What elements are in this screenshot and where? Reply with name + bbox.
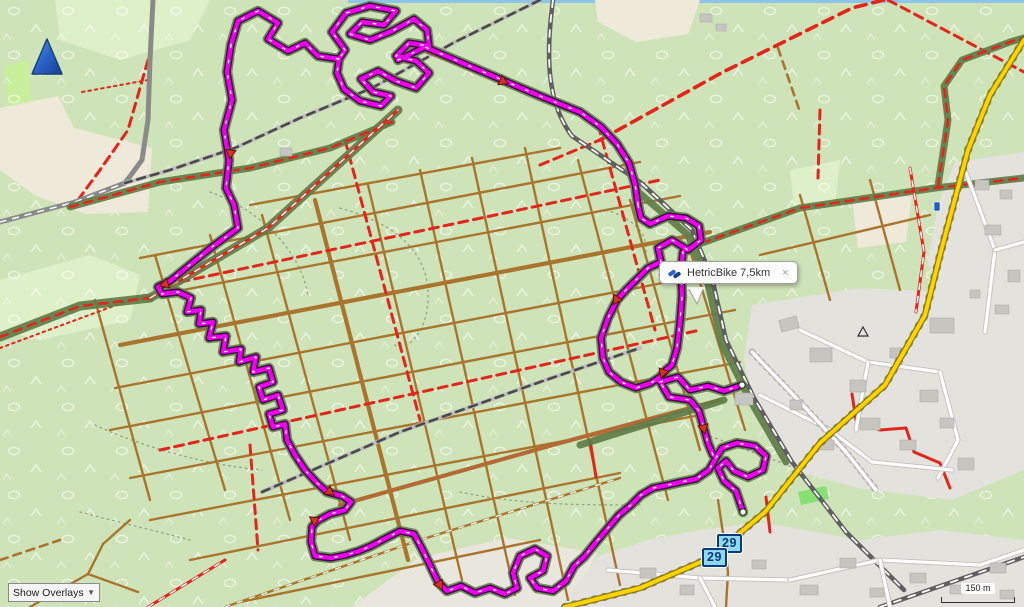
tooltip-tail <box>684 287 708 307</box>
show-overlays-label: Show Overlays <box>13 587 84 599</box>
tooltip-close-icon[interactable]: × <box>782 267 788 279</box>
route-tooltip[interactable]: HetricBike 7,5km × <box>659 261 798 284</box>
show-overlays-select[interactable]: Show Overlays ▼ <box>8 583 100 602</box>
route-footprints-icon <box>667 266 682 279</box>
scale-bar-line <box>941 597 1015 603</box>
route-badge-29: 29 <box>702 548 727 567</box>
map-canvas[interactable] <box>0 0 1024 607</box>
route-tooltip-label: HetricBike 7,5km <box>687 267 770 279</box>
scale-bar-label: 150 m <box>961 583 994 594</box>
map-viewport[interactable]: HetricBike 7,5km × 29 29 150 m Show Over… <box>0 0 1024 607</box>
scale-bar: 150 m <box>941 578 1015 603</box>
info-marker <box>934 202 940 211</box>
chevron-down-icon: ▼ <box>87 588 95 597</box>
